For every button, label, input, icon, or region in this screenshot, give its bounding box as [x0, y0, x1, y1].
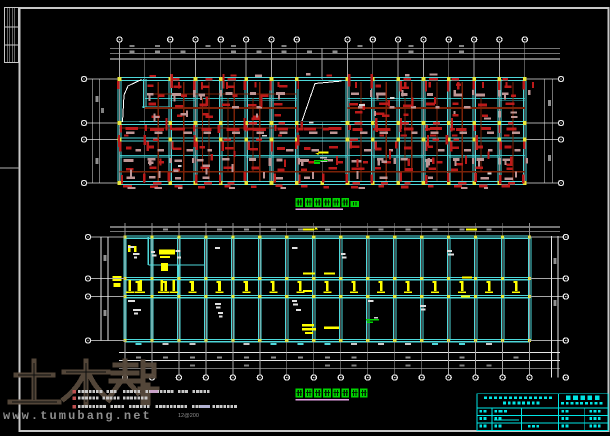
svg-text:12@200: 12@200 [178, 413, 199, 419]
svg-text:www.tumubang.net: www.tumubang.net [3, 409, 152, 423]
